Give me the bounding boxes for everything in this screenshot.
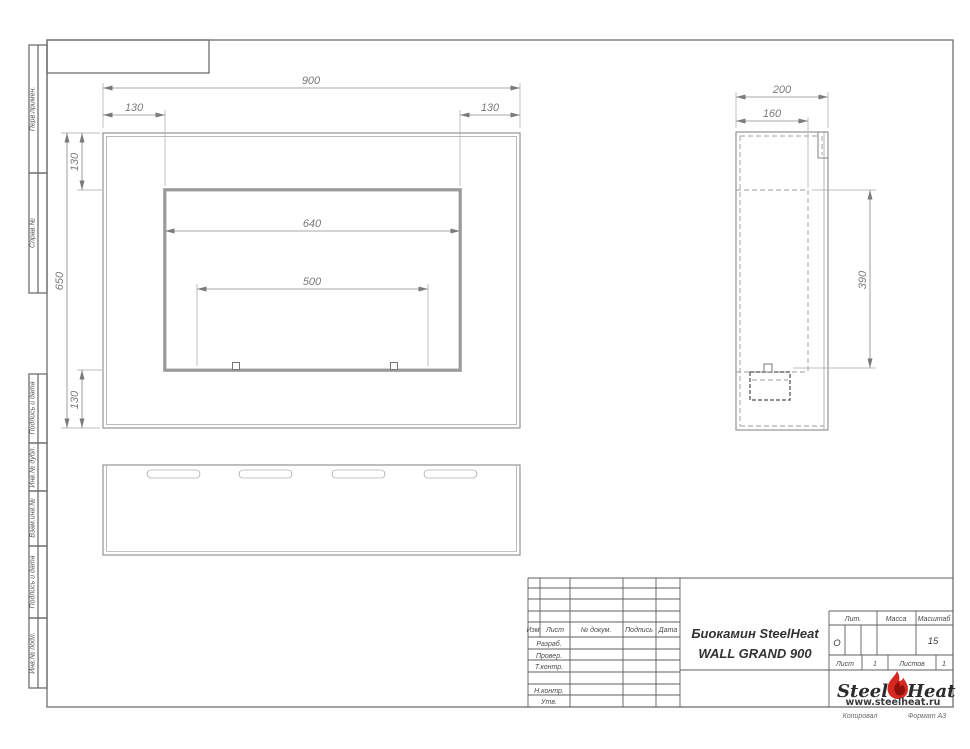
sheet-label: Лист — [835, 661, 854, 668]
sheet-footer: Копировал Формат А3 — [843, 713, 947, 720]
margin-label: Подпись и дата — [29, 555, 37, 608]
margin-cell: Подпись и дата — [29, 374, 48, 443]
side-burner-box — [750, 372, 790, 400]
scale-value: 15 — [928, 636, 939, 647]
drawing-canvas: Перв.примен. Справ.№ Подпись и дата Инв.… — [0, 0, 970, 749]
massa-label: Масса — [886, 616, 907, 623]
drawing-frame — [47, 40, 953, 707]
burner-tab-right — [391, 363, 398, 370]
row-nkontr: Н.контр. — [534, 688, 564, 695]
dim-front-height: 650 — [54, 271, 66, 290]
margin-cell: Справ.№ — [29, 173, 47, 293]
steelheat-logo: Steel Heat www.steelheat.ru — [837, 671, 956, 708]
row-utv: Утв. — [540, 699, 557, 706]
dim-front-width: 900 — [302, 75, 321, 87]
col-date: Дата — [658, 627, 678, 634]
sheet-number: 1 — [873, 661, 877, 668]
dim-side-inner-depth: 160 — [763, 108, 782, 120]
footer-copied-label: Копировал — [843, 713, 878, 720]
margin-label: Взам.инв.№ — [30, 498, 37, 538]
sheets-label: Листов — [898, 661, 925, 668]
row-prover: Провер. — [536, 653, 562, 660]
dim-front-left-offset: 130 — [125, 102, 144, 114]
col-izm: Изм. — [527, 627, 542, 634]
left-margin-column: Перв.примен. Справ.№ Подпись и дата Инв.… — [29, 45, 48, 688]
dim-front-bottom-offset: 130 — [69, 390, 81, 409]
lit-value: О — [833, 638, 841, 649]
side-view-dimensions: 200 160 390 — [736, 84, 876, 368]
margin-cell: Инв.№ подл. — [29, 618, 48, 688]
dim-opening-width: 640 — [303, 218, 322, 230]
sheets-number: 1 — [942, 661, 946, 668]
col-list: Лист — [545, 627, 564, 634]
drawing-sheet: Перв.примен. Справ.№ Подпись и дата Инв.… — [0, 0, 970, 749]
bottom-outer-contour — [103, 465, 520, 555]
margin-label: Инв.№ подл. — [29, 632, 37, 674]
burner-tab-left — [233, 363, 240, 370]
margin-label: Перв.примен. — [30, 87, 37, 132]
doc-title-line2: WALL GRAND 900 — [698, 646, 812, 661]
side-view — [736, 132, 828, 430]
margin-cell: Подпись и дата — [29, 546, 48, 618]
front-view-dimensions: 900 130 130 650 130 130 640 500 — [54, 75, 520, 428]
mount-bracket — [818, 132, 828, 158]
vent-slot — [332, 470, 385, 478]
margin-cell: Инв.№ дубл. — [29, 443, 48, 491]
side-burner-tab — [764, 364, 772, 372]
vent-slot — [424, 470, 477, 478]
row-tkontr: Т.контр. — [535, 664, 563, 671]
dim-side-opening-height: 390 — [857, 270, 869, 289]
flame-icon — [888, 671, 909, 699]
scale-label: Масштаб — [918, 615, 952, 623]
row-razrab: Разраб. — [536, 640, 561, 648]
margin-label: Подпись и дата — [29, 381, 37, 434]
doc-title-line1: Биокамин SteelHeat — [691, 626, 819, 641]
sheet-frame — [47, 40, 953, 707]
top-left-stamp-box — [47, 40, 209, 73]
margin-label: Инв.№ дубл. — [29, 446, 37, 487]
margin-cell: Взам.инв.№ — [29, 491, 47, 546]
dim-front-top-offset: 130 — [69, 152, 81, 171]
footer-format-label: Формат А3 — [908, 713, 946, 720]
vent-slot — [147, 470, 200, 478]
logo-url: www.steelheat.ru — [846, 697, 941, 708]
margin-label: Справ.№ — [30, 218, 37, 248]
dim-burner-width: 500 — [303, 276, 322, 288]
lit-label: Лит. — [844, 616, 861, 623]
col-doc: № докум. — [581, 626, 612, 634]
vent-slot — [239, 470, 292, 478]
dim-front-right-offset: 130 — [481, 102, 500, 114]
dim-side-depth: 200 — [772, 84, 792, 96]
bottom-view — [103, 465, 520, 555]
margin-cell: Перв.примен. — [29, 45, 47, 173]
col-sign: Подпись — [625, 626, 653, 634]
